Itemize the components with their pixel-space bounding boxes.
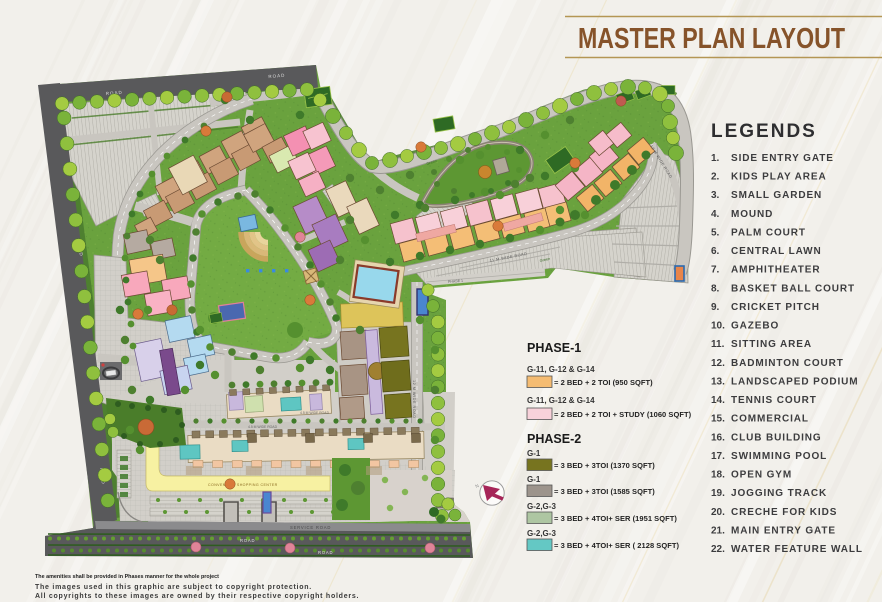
svg-text:PHASE-1: PHASE-1 [527,341,581,355]
svg-text:SIDE ENTRY GATE: SIDE ENTRY GATE [731,153,834,164]
svg-text:JOGGING TRACK: JOGGING TRACK [731,488,827,499]
svg-text:3.: 3. [711,190,720,201]
svg-text:G-11, G-12 & G-14: G-11, G-12 & G-14 [527,396,595,405]
svg-text:MASTER PLAN LAYOUT: MASTER PLAN LAYOUT [578,23,845,55]
svg-text:6.: 6. [711,246,720,257]
svg-text:9.: 9. [711,302,720,313]
svg-text:KIDS PLAY AREA: KIDS PLAY AREA [731,172,827,183]
svg-text:5.: 5. [711,228,720,239]
svg-text:COMMERCIAL: COMMERCIAL [731,414,809,425]
svg-text:LANDSCAPED PODIUM: LANDSCAPED PODIUM [731,376,859,387]
svg-text:OPEN GYM: OPEN GYM [731,470,792,481]
svg-text:= 3 BED + 4TOI+ SER ( 2128 SQF: = 3 BED + 4TOI+ SER ( 2128 SQFT) [554,541,680,550]
svg-text:The images used in this graphi: The images used in this graphic are subj… [35,584,312,591]
svg-text:13.: 13. [711,376,725,387]
svg-text:= 3 BED + 4TOI+ SER (1951 SQFT: = 3 BED + 4TOI+ SER (1951 SQFT) [554,514,677,523]
svg-text:TENNIS COURT: TENNIS COURT [731,395,817,406]
svg-text:G-1: G-1 [527,475,541,484]
svg-text:PHASE-2: PHASE-2 [527,432,581,446]
svg-text:ROAD: ROAD [240,538,255,543]
svg-text:19.: 19. [711,488,725,499]
svg-text:CLUB BUILDING: CLUB BUILDING [731,432,822,443]
svg-text:17.: 17. [711,451,725,462]
svg-text:12.: 12. [711,358,725,369]
svg-text:LEGENDS: LEGENDS [711,121,817,142]
svg-text:= 2 BED + 2 TOI + STUDY (1060: = 2 BED + 2 TOI + STUDY (1060 SQFT) [554,410,692,419]
svg-text:7.: 7. [711,265,720,276]
svg-text:CONVENIENT SHOPPING CENTER: CONVENIENT SHOPPING CENTER [208,483,278,487]
svg-text:MAIN ENTRY GATE: MAIN ENTRY GATE [731,525,836,536]
svg-text:G-1: G-1 [527,449,541,458]
svg-text:G-2,G-3: G-2,G-3 [527,502,556,511]
svg-text:CENTRAL LAWN: CENTRAL LAWN [731,246,822,257]
svg-text:G-11, G-12 & G-14: G-11, G-12 & G-14 [527,365,595,374]
svg-text:14.: 14. [711,395,725,406]
svg-text:11.: 11. [711,339,725,350]
svg-text:4.: 4. [711,209,720,220]
svg-text:PALM COURT: PALM COURT [731,228,806,239]
svg-text:MOUND: MOUND [731,209,773,220]
svg-text:All copyrights to these images: All copyrights to these images are owned… [35,593,359,600]
svg-text:= 2 BED + 2 TOI (950 SQFT): = 2 BED + 2 TOI (950 SQFT) [554,378,653,387]
svg-text:4.5 M WIDE ROAD: 4.5 M WIDE ROAD [300,411,330,415]
svg-text:AMPHITHEATER: AMPHITHEATER [731,265,821,276]
svg-text:BADMINTON COURT: BADMINTON COURT [731,358,844,369]
svg-text:GAZEBO: GAZEBO [731,321,779,332]
svg-text:SWIMMING POOL: SWIMMING POOL [731,451,827,462]
svg-text:G-2,G-3: G-2,G-3 [527,529,556,538]
svg-text:= 3 BED + 3TOI (1585 SQFT): = 3 BED + 3TOI (1585 SQFT) [554,487,655,496]
svg-text:The amenities shall be provide: The amenities shall be provided in Phase… [35,574,219,580]
svg-text:1.: 1. [711,153,720,164]
svg-text:ROAD: ROAD [318,550,333,555]
svg-text:10.: 10. [711,321,725,332]
svg-text:SITTING AREA: SITTING AREA [731,339,812,350]
svg-text:CRECHE FOR KIDS: CRECHE FOR KIDS [731,507,837,518]
svg-text:18.: 18. [711,470,725,481]
svg-text:22.: 22. [711,544,725,555]
svg-text:12 M WIDE ROAD: 12 M WIDE ROAD [412,380,416,418]
svg-text:8.: 8. [711,283,720,294]
svg-text:2.: 2. [711,172,720,183]
svg-text:= 3 BED + 3TOI (1370 SQFT): = 3 BED + 3TOI (1370 SQFT) [554,461,655,470]
svg-text:WATER FEATURE WALL: WATER FEATURE WALL [731,544,863,555]
svg-text:4.5 M WIDE ROAD: 4.5 M WIDE ROAD [248,425,278,429]
svg-text:CRICKET PITCH: CRICKET PITCH [731,302,820,313]
svg-text:SMALL GARDEN: SMALL GARDEN [731,190,822,201]
svg-text:15.: 15. [711,414,725,425]
svg-text:SERVICE ROAD: SERVICE ROAD [290,525,331,530]
svg-text:20.: 20. [711,507,725,518]
svg-text:BASKET BALL COURT: BASKET BALL COURT [731,283,855,294]
svg-text:21.: 21. [711,525,725,536]
svg-text:16.: 16. [711,432,725,443]
